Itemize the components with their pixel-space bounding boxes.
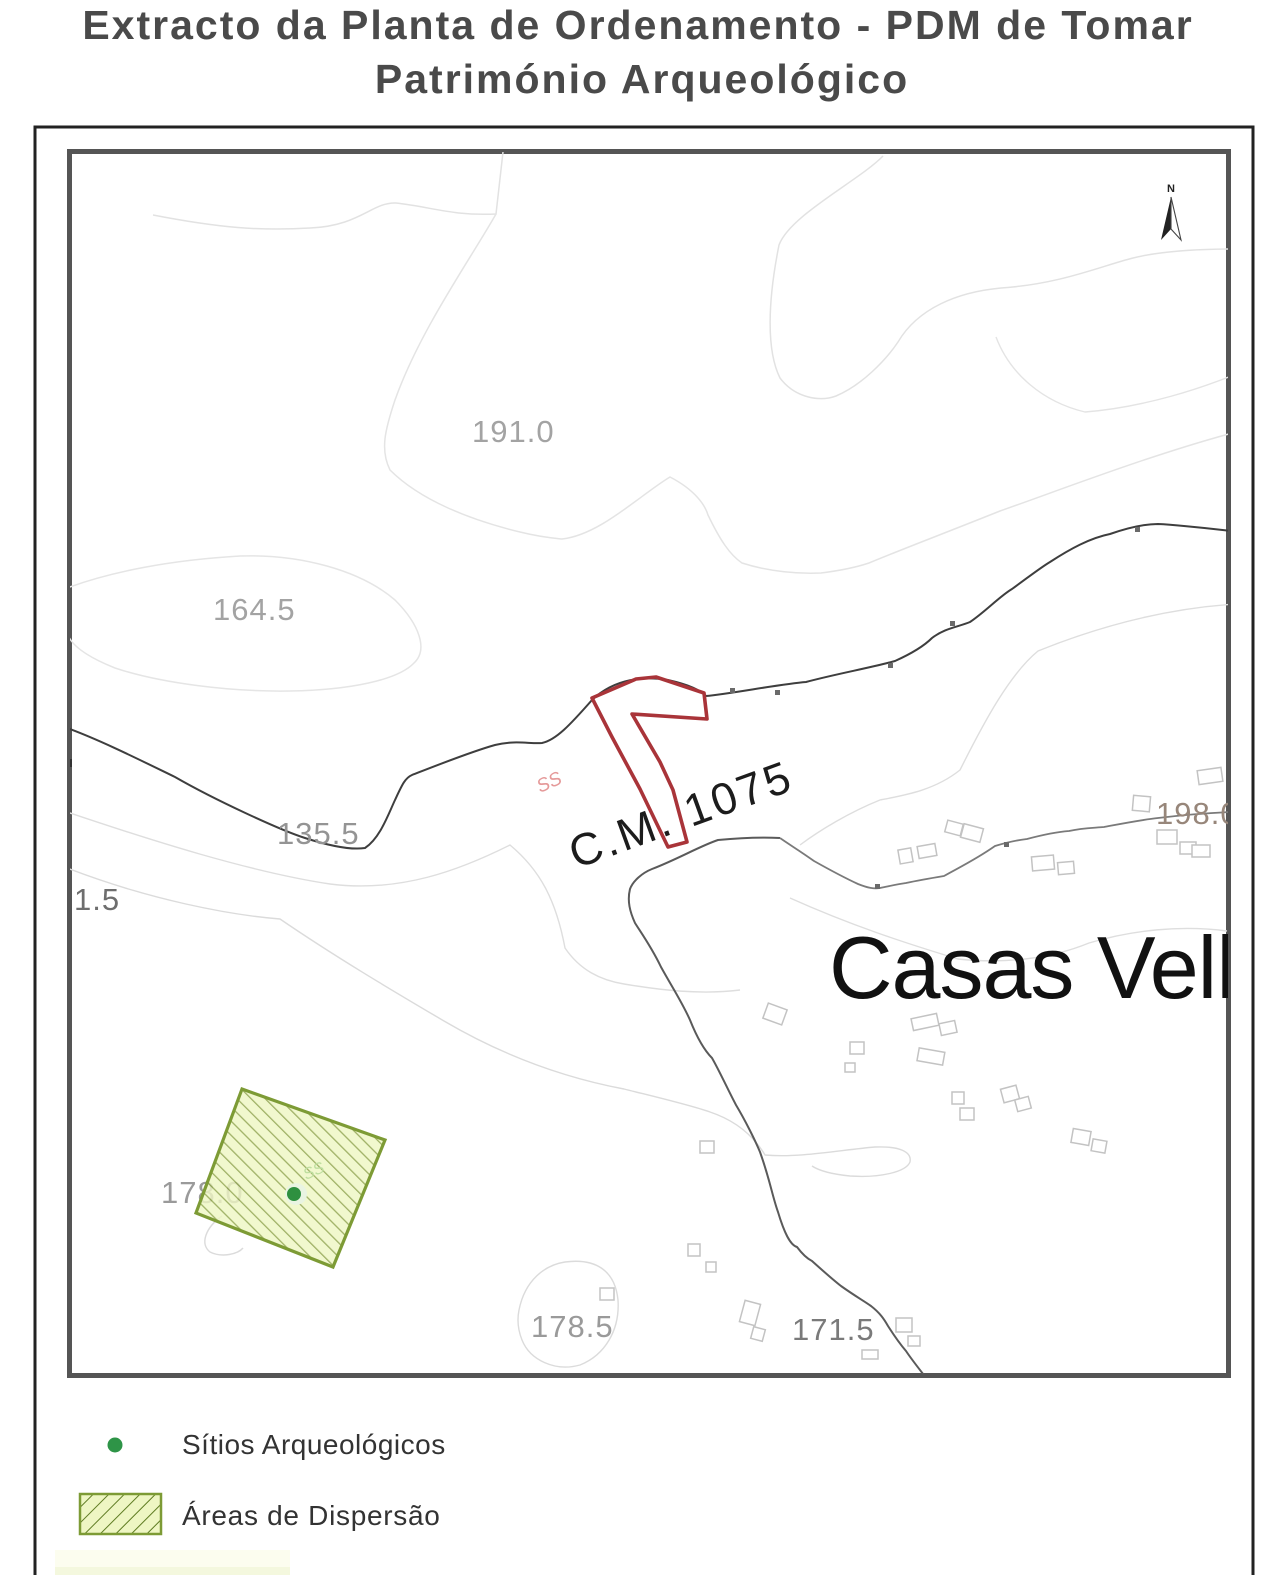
- svg-text:Património Arqueológico: Património Arqueológico: [375, 56, 909, 102]
- svg-text:1.5: 1.5: [74, 882, 120, 917]
- svg-text:Sítios Arqueológicos: Sítios Arqueológicos: [182, 1429, 446, 1460]
- svg-text:191.0: 191.0: [472, 414, 555, 449]
- svg-text:198.0: 198.0: [1156, 796, 1239, 831]
- svg-text:178.5: 178.5: [531, 1309, 614, 1344]
- svg-text:135.5: 135.5: [277, 816, 360, 851]
- svg-text:N: N: [1167, 183, 1175, 195]
- svg-text:171.5: 171.5: [792, 1312, 875, 1347]
- svg-text:164.5: 164.5: [213, 592, 296, 627]
- svg-text:Áreas de Dispersão: Áreas de Dispersão: [182, 1500, 441, 1531]
- svg-text:Casas Velhas: Casas Velhas: [829, 918, 1280, 1017]
- svg-text:SS: SS: [533, 768, 565, 798]
- svg-text:Extracto da Planta de Ordename: Extracto da Planta de Ordenamento - PDM …: [82, 2, 1193, 48]
